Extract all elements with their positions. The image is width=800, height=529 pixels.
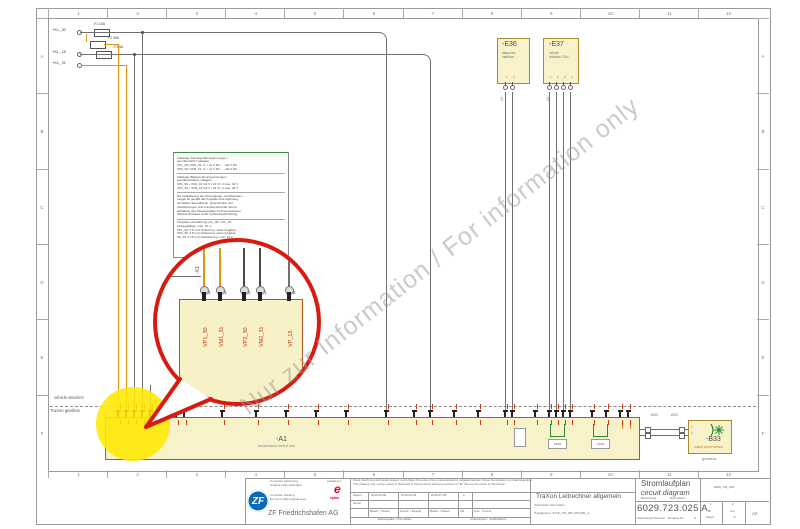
a1-pin-tick: [622, 420, 623, 425]
frame-row-left: E: [36, 319, 48, 395]
component-pin-circle: [561, 85, 566, 90]
a1-pin: [562, 411, 564, 417]
a1-pin-tick: [514, 404, 515, 409]
magnified-pin-number: 3: [224, 290, 227, 295]
frame-col-top: 11: [639, 8, 699, 18]
magnified-connector-line: [162, 276, 201, 277]
a1-pin-cap: [476, 410, 481, 412]
a1-pin-tick: [288, 420, 289, 425]
a1-output-tick: [630, 425, 631, 429]
a1-pin-tick: [514, 420, 515, 425]
wire: [563, 92, 564, 417]
frame-row-left: A: [36, 18, 48, 94]
frame-col-bottom: 10: [580, 470, 640, 478]
a1-pin-cap: [452, 410, 457, 412]
terminator2-box: 120Ω: [591, 439, 610, 449]
wire: [556, 92, 557, 417]
frame-col-top: 3: [166, 8, 226, 18]
magnified-pin-number: 4: [208, 290, 211, 295]
tb-description: Description: [670, 497, 685, 501]
a1-pin-tick: [456, 420, 457, 425]
wire: [104, 44, 118, 45]
wire: [118, 44, 119, 417]
zone-label-gearbox: gearbox: [702, 457, 716, 461]
component-pin-number: 1: [506, 76, 507, 79]
a1-pin: [504, 411, 506, 417]
frame-row-right: D: [757, 244, 769, 320]
a1-pin-tick: [572, 404, 573, 409]
wire: [80, 32, 378, 33]
frame-row-right: B: [757, 93, 769, 169]
a1-pin-tick: [565, 420, 566, 425]
connector-x2-label: -X2: [500, 97, 504, 102]
connector-x3-label: -X3: [546, 97, 550, 102]
a1-pin-tick: [432, 420, 433, 425]
cable-w43-label: -W43: [650, 414, 658, 418]
a1-pin-tick: [432, 404, 433, 409]
a1-pin: [605, 411, 607, 417]
component-pin-circle: [503, 85, 508, 90]
wire: [512, 92, 513, 417]
a1-internal-module: [514, 428, 526, 447]
tb-note-en: Computer drawingDo not modify original c…: [270, 494, 306, 502]
a1-pin-tick: [480, 420, 481, 425]
wire-junction: [133, 53, 136, 56]
wire: [505, 92, 506, 417]
component-b33-desc: output speed sensor: [694, 446, 723, 450]
wire: [80, 54, 422, 55]
frame-col-top: 7: [403, 8, 463, 18]
eplan-logo: e: [334, 483, 341, 496]
terminator1-box: 120Ω: [548, 439, 567, 449]
magnified-wire: [259, 248, 261, 288]
fuse-f2-symbol: [90, 41, 106, 49]
a1-pin-tick: [630, 420, 631, 425]
tb-ind: Ind.: [460, 510, 465, 514]
frame-row-right: A: [757, 18, 769, 94]
schematic-page: 112233445566778899101011111212AABBCCDDEE…: [0, 0, 800, 529]
fuse-f2-label: -F2 30A: [107, 37, 119, 41]
a1-pin-cap: [384, 410, 389, 412]
tb-of: of: [733, 516, 736, 520]
tb-drawing-number: 6029.723.025 A: [637, 504, 708, 515]
a1-pin-cap: [344, 410, 349, 412]
eplan-name: eplan: [330, 497, 339, 501]
a1-pin: [627, 411, 629, 417]
tb-date-1: 2016-04-04: [371, 494, 386, 498]
tb-project: Projektname: 6Y08_723_025_PDA001_A: [534, 512, 589, 516]
tb-number-label-en: Drawing-No.: [668, 517, 685, 521]
component-pin-number: 3: [564, 76, 565, 79]
a1-pin: [315, 411, 317, 417]
magnified-pin-stub: [218, 292, 222, 301]
a1-pin: [591, 411, 593, 417]
terminal-kl30-label: +KL_30: [52, 28, 66, 32]
b33-pin-2: 2: [691, 433, 692, 436]
frame-row-right: F: [757, 395, 769, 471]
a1-pin-cap: [554, 410, 559, 412]
a1-pin-tick: [558, 420, 559, 425]
a1-pin-tick: [565, 404, 566, 409]
magnified-pin-number: 2: [248, 290, 251, 295]
a1-pin-tick: [608, 420, 609, 425]
magnified-wire: [288, 248, 290, 288]
component-pin-number: 1: [550, 76, 551, 79]
a1-pin-tick: [537, 404, 538, 409]
frame-row-right: C: [757, 169, 769, 245]
frame-col-top: 2: [107, 8, 167, 18]
note-section: Zulässige Batterie-Nennspannungen /permi…: [177, 174, 285, 193]
a1-pin-cap: [604, 410, 609, 412]
a1-output-tick: [622, 425, 623, 429]
frame-col-top: 9: [521, 8, 581, 18]
frame-col-bottom: 1: [48, 470, 108, 478]
a1-pin-tick: [594, 420, 595, 425]
a1-pin-tick: [507, 420, 508, 425]
a1-pin-cap: [568, 410, 573, 412]
frame-col-bottom: 11: [639, 470, 699, 478]
tb-date-3: 2016-07-08: [431, 494, 446, 498]
wire-plug: [645, 433, 651, 439]
frame-col-bottom: 12: [698, 470, 758, 478]
wire: [86, 34, 87, 42]
magnified-pin-stub: [242, 292, 246, 301]
a1-pin-cap: [547, 410, 552, 412]
tb-role-2: Konstr. / Design: [400, 510, 421, 514]
tb-role-1: Bearb. / Drawn: [370, 510, 390, 514]
tb-number-aend: Ä: [694, 517, 696, 521]
a1-pin-tick: [507, 404, 508, 409]
a1-pin-tick: [388, 420, 389, 425]
component-pin-circle: [568, 85, 573, 90]
a1-pin-tick: [594, 404, 595, 409]
frame-row-right: E: [757, 319, 769, 395]
frame-col-top: 12: [698, 8, 758, 18]
tb-file: 6029_723_025: [714, 486, 734, 490]
terminal-kl15-label: +KL_15: [52, 50, 66, 54]
zone-label-traxon: TraXon gearbox: [50, 409, 80, 414]
a1-pin-tick: [630, 404, 631, 409]
frame-col-bottom: 4: [225, 470, 285, 478]
frame-col-top: 6: [343, 8, 403, 18]
tb-modifications: Änderungen / modifications: [470, 518, 506, 522]
a1-pin-tick: [348, 404, 349, 409]
a1-pin-tick: [622, 404, 623, 409]
a1-pin: [477, 411, 479, 417]
wire: [570, 92, 571, 417]
frame-col-bottom: 5: [284, 470, 344, 478]
a1-pin: [285, 411, 287, 417]
frame-col-bottom: 6: [343, 470, 403, 478]
terminator1-wire: [550, 436, 565, 437]
frame-col-top: 8: [462, 8, 522, 18]
magnified-pin-signal: VM1_31: [219, 327, 225, 348]
zf-logo: ZF: [247, 490, 269, 512]
tb-rev: a: [463, 494, 465, 498]
a1-pin: [345, 411, 347, 417]
magnified-pin-number: 1: [264, 290, 267, 295]
magnified-wire: [203, 248, 205, 288]
cable-w33-label: -W33: [670, 414, 678, 418]
component-pin-circle: [547, 85, 552, 90]
tb-first-edition: Erstausgabe / first edition: [378, 518, 412, 522]
tb-aend: Änd. / Grund: [474, 510, 491, 514]
a1-pin: [385, 411, 387, 417]
frame-col-top: 5: [284, 8, 344, 18]
a1-pin-tick: [537, 420, 538, 425]
tb-role-3: Bearb. / Drawn: [430, 510, 450, 514]
fuse-f3-symbol: [96, 51, 112, 59]
a1-pin-tick: [558, 404, 559, 409]
a1-pin: [555, 411, 557, 417]
wire: [430, 62, 431, 417]
a1-pin-tick: [416, 420, 417, 425]
a1-pin-cap: [284, 410, 289, 412]
b33-pin-1: 1: [691, 427, 692, 430]
a1-pin-tick: [551, 404, 552, 409]
component-pin-number: 2: [557, 76, 558, 79]
frame-row-left: F: [36, 395, 48, 471]
a1-pin: [453, 411, 455, 417]
tb-datum-label: Datum: [353, 494, 362, 498]
a1-pin-tick: [480, 404, 481, 409]
terminator2-wire: [593, 436, 608, 437]
a1-pin-cap: [503, 410, 508, 412]
magnified-connector-x1: -X1: [195, 266, 201, 274]
tb-title: TraXon Leitrechner allgemein: [536, 493, 621, 500]
frame-col-top: 4: [225, 8, 285, 18]
wire: [386, 40, 387, 417]
magnified-pin-number: 8: [293, 290, 296, 295]
component-e37-ref: -E37: [549, 41, 564, 49]
frame-col-bottom: 2: [107, 470, 167, 478]
magnified-wire: [219, 248, 221, 288]
tb-sheet-bl: Bl.: [708, 510, 712, 514]
a1-pin-tick: [572, 420, 573, 425]
magnified-pin-signal: VM2_31: [259, 327, 265, 348]
magnified-pin-stub: [287, 292, 291, 301]
a1-pin-cap: [314, 410, 319, 412]
wire-junction: [141, 31, 144, 34]
magnifier-tail: [120, 360, 260, 440]
frame-col-bottom: 7: [403, 470, 463, 478]
tb-company: ZF Friedrichshafen AG: [268, 510, 338, 518]
component-e37-desc: vehicle driveline CAN: [549, 51, 569, 59]
wire: [81, 65, 126, 66]
fuse-f1-label: -F1 10A: [93, 23, 105, 27]
speed-sensor-icon: [707, 423, 725, 437]
tb-name-label: Name: [353, 502, 361, 506]
a1-pin-tick: [608, 404, 609, 409]
a1-pin-cap: [618, 410, 623, 412]
frame-col-top: 1: [48, 8, 108, 18]
component-e37: -E37 vehicle driveline CAN: [543, 38, 579, 84]
component-pin-number: 2: [513, 76, 514, 79]
a1-pin: [569, 411, 571, 417]
a1-pin-tick: [348, 420, 349, 425]
component-b33: 1 2 -B33 output speed sensor: [688, 420, 732, 454]
magnified-pin-stub: [202, 292, 206, 301]
a1-pin-tick: [456, 404, 457, 409]
component-e36-desc: diagnosis interface: [502, 51, 526, 59]
component-a1-ref: -A1: [276, 436, 287, 444]
terminal-kl31-label: +KL_31: [52, 61, 66, 65]
frame-col-bottom: 8: [462, 470, 522, 478]
tb-sheet-word: Sheet: [706, 516, 714, 520]
a1-pin-cap: [412, 410, 417, 412]
a1-pin-cap: [533, 410, 538, 412]
frame-row-left: B: [36, 93, 48, 169]
component-a1-desc: transmission control unit: [258, 445, 295, 449]
a1-pin: [413, 411, 415, 417]
component-pin-circle: [510, 85, 515, 90]
tb-benennung: Benennung: [641, 497, 656, 501]
a1-pin: [548, 411, 550, 417]
frame-col-bottom: 9: [521, 470, 581, 478]
a1-pin-tick: [288, 404, 289, 409]
a1-pin-tick: [551, 420, 552, 425]
a1-pin-tick: [318, 420, 319, 425]
magnified-wire: [243, 248, 245, 288]
frame-row-left: D: [36, 244, 48, 320]
wire-plug: [679, 433, 685, 439]
a1-pin: [429, 411, 431, 417]
frame-col-bottom: 3: [166, 470, 226, 478]
tb-of-no: 2: [732, 503, 734, 507]
magnified-pin-signal: VP_15: [288, 330, 294, 347]
magnified-pin-signal: VP2_30: [243, 327, 249, 347]
frame-col-top: 10: [580, 8, 640, 18]
magnified-pin-stub: [258, 292, 262, 301]
magnified-pin-signal: VP1_30: [203, 327, 209, 347]
a1-pin: [534, 411, 536, 417]
component-b33-ref: -B33: [706, 436, 721, 444]
component-pin-circle: [554, 85, 559, 90]
tb-von: von: [730, 510, 735, 514]
tb-size: A2: [752, 511, 758, 516]
tb-disclaimer: Diese Zeichnung darf weder kopiert, noch…: [353, 479, 633, 492]
a1-pin: [619, 411, 621, 417]
a1-pin-cap: [561, 410, 566, 412]
a1-pin-tick: [416, 404, 417, 409]
tb-number-label-de: Zeichnungs-Nummer: [637, 517, 665, 521]
wire: [549, 92, 550, 417]
zone-label-vehicle: vehicle electrics: [54, 396, 84, 401]
a1-pin-tick: [318, 404, 319, 409]
a1-pin-cap: [428, 410, 433, 412]
component-pin-number: 4: [571, 76, 572, 79]
component-e36-ref: -E36: [502, 41, 517, 49]
tb-tech-info: Technische Information: [534, 504, 565, 508]
tb-note-de: Computer ZeichnungOriginal nicht verände…: [270, 480, 303, 488]
note-section: Die Verkabelung der Versorgungs- und Mas…: [177, 193, 285, 220]
tb-date-2: 2016-05-04: [401, 494, 416, 498]
a1-pin-cap: [626, 410, 631, 412]
a1-pin: [511, 411, 513, 417]
a1-pin-cap: [590, 410, 595, 412]
a1-pin-tick: [388, 404, 389, 409]
a1-pin-cap: [510, 410, 515, 412]
tb-sheet-no: 1: [710, 503, 712, 507]
frame-row-left: C: [36, 169, 48, 245]
note-section: Zulässige Steuergeräte-Spannungen /permi…: [177, 155, 285, 174]
